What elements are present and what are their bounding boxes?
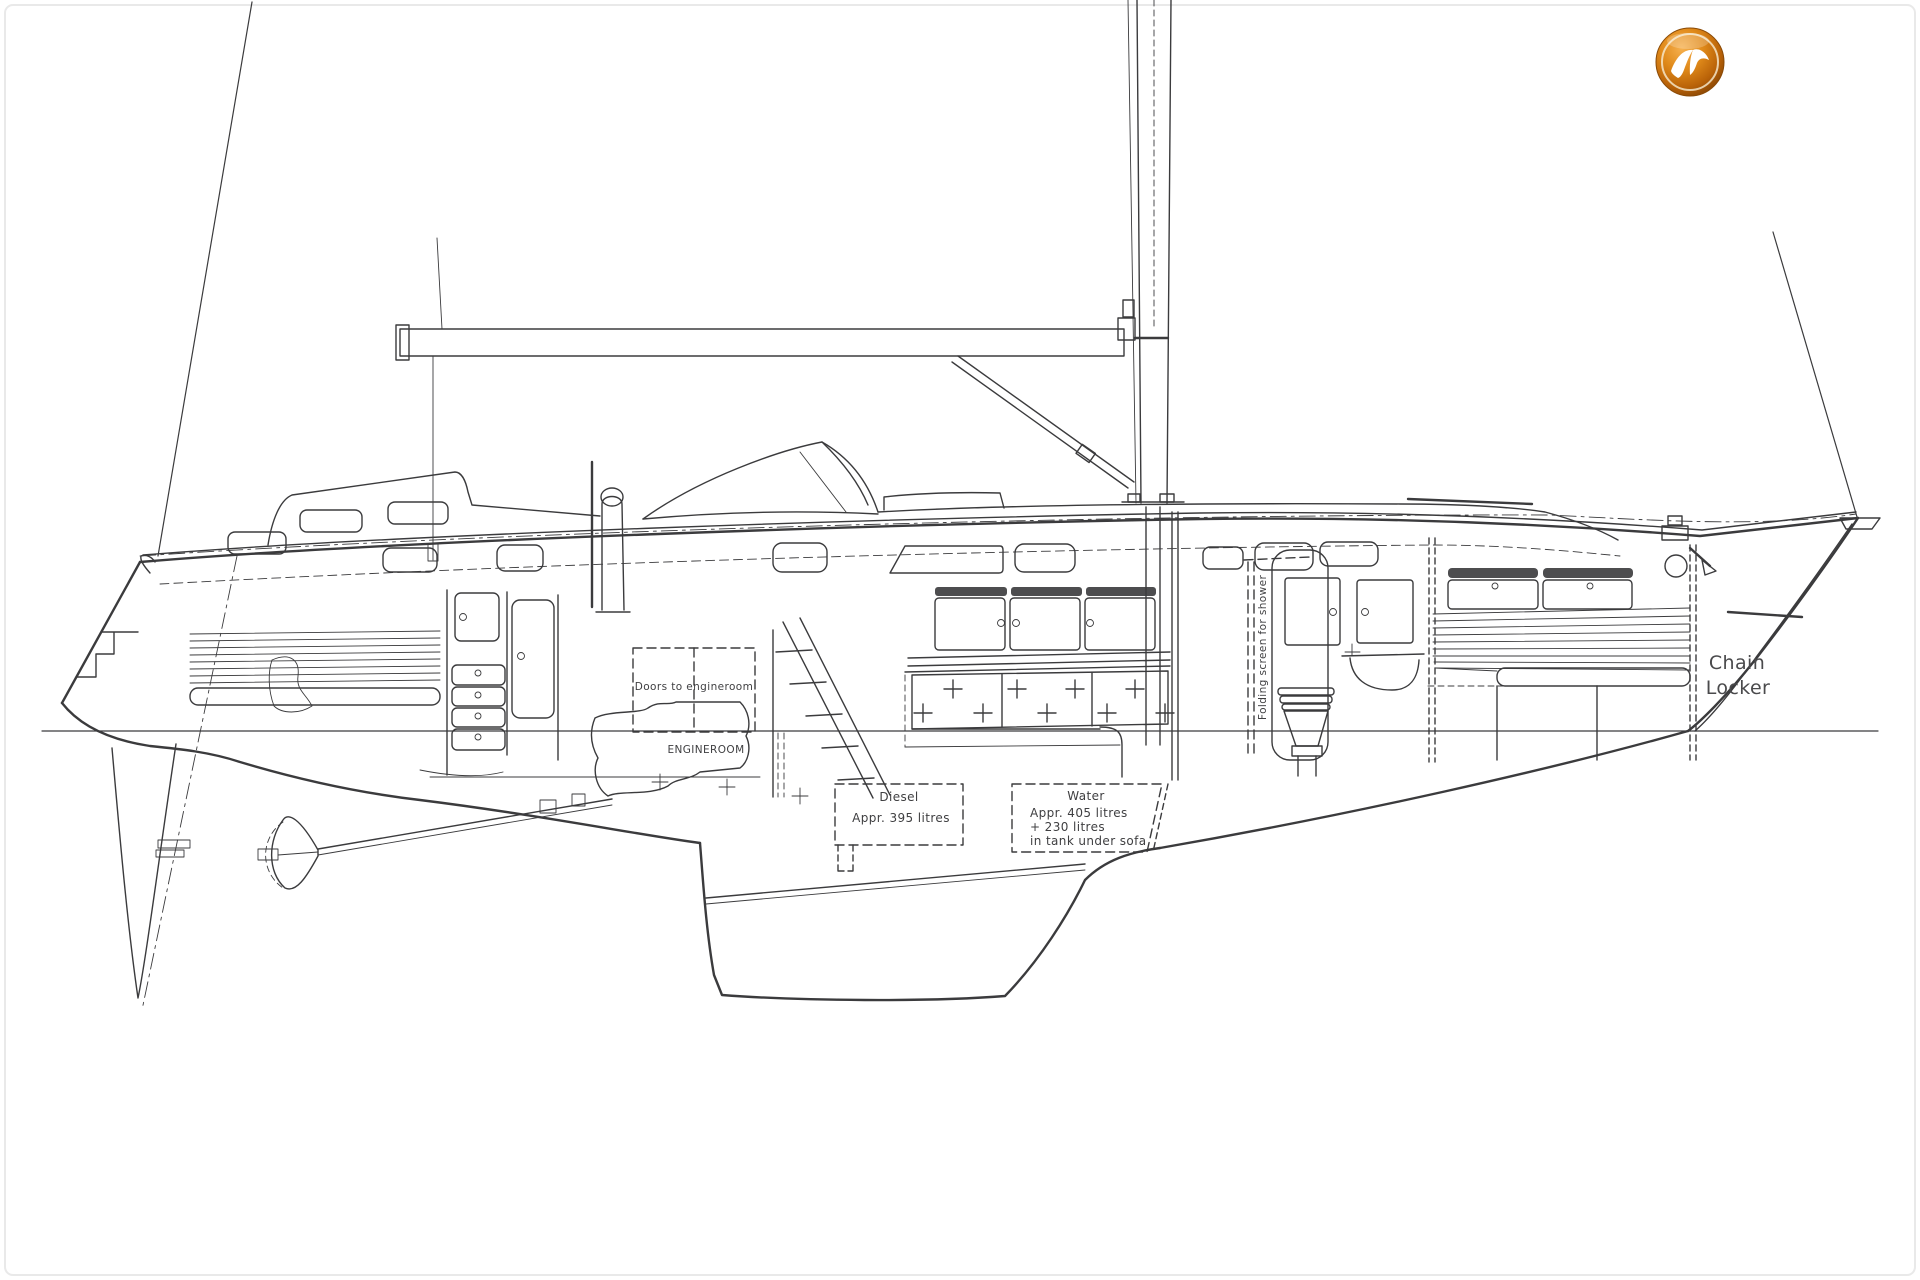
boom-vang [952, 356, 1134, 488]
forestay [1773, 232, 1857, 517]
chain-locker-label-1: Chain [1709, 652, 1765, 674]
water-tank-capacity-2: + 230 litres [1030, 820, 1105, 834]
backstay [158, 2, 252, 556]
deck-datum-line [140, 514, 1856, 556]
folding-screen-label: Folding screen for shower [1257, 575, 1269, 720]
aft-cabin-interior [190, 590, 558, 776]
propeller [258, 817, 318, 889]
drawer-stack [452, 665, 505, 750]
aft-trunk-window-2 [388, 502, 448, 524]
hull-outline [42, 512, 1878, 1000]
water-tank: Water Appr. 405 litres + 230 litres in t… [1012, 784, 1168, 852]
aft-cabin-door [512, 600, 554, 718]
coachroof [878, 493, 1618, 540]
bow-porthole [1665, 555, 1687, 577]
aft-locker [455, 593, 499, 641]
engineroom-area [430, 630, 808, 804]
sprayhood [643, 442, 878, 519]
chain-locker-label-2: Locker [1706, 677, 1771, 699]
water-tank-capacity-3: in tank under sofa [1030, 834, 1147, 848]
head-fwd-bulkhead [1429, 538, 1435, 762]
mainsheet [428, 356, 438, 561]
hull-bottom-fwd [1160, 731, 1688, 848]
boom [396, 300, 1168, 360]
rigging [158, 0, 1857, 561]
bow-fittings [1662, 516, 1880, 575]
engine-mount-crosses [652, 774, 808, 804]
stern-tip [141, 555, 155, 573]
prop-shaft [318, 794, 612, 855]
mast-support-post [1146, 507, 1160, 745]
shower-screen [1244, 557, 1310, 758]
sink-basin [1342, 644, 1424, 690]
head-cabinet-2 [1357, 580, 1413, 643]
handrail [1408, 499, 1532, 504]
companionway-steps [776, 618, 890, 798]
water-tank-capacity-1: Appr. 405 litres [1030, 806, 1128, 820]
broker-logo [1656, 28, 1724, 96]
aft-cabin-seat [269, 657, 312, 712]
cushion-tufting-marks [914, 680, 1174, 722]
diesel-tank-capacity: Appr. 395 litres [852, 811, 950, 825]
aft-cabin-trunk [268, 472, 600, 545]
chain-locker: Chain Locker [1690, 545, 1802, 760]
aft-trunk-window-1 [300, 510, 362, 532]
v-berth-front [1497, 668, 1690, 686]
aft-berth-slats [190, 631, 440, 683]
mast [1122, 0, 1184, 503]
aft-berth-front [190, 688, 440, 705]
faucet [1345, 644, 1360, 655]
hull-bottom-aft [62, 703, 700, 843]
saloon-cabinet-3 [1085, 598, 1155, 650]
head-door-frame [1272, 550, 1328, 760]
engineroom-label: ENGINEROOM [667, 744, 744, 756]
interior-shelf-line [160, 545, 1620, 584]
rudder [112, 556, 237, 1010]
head-compartment [1244, 538, 1435, 776]
anchor-fluke [1702, 560, 1716, 575]
stern-steps [76, 632, 138, 677]
settee [905, 671, 1174, 777]
saloon-shelf [905, 652, 1170, 672]
keel [700, 843, 1160, 1000]
toilet [1278, 688, 1334, 776]
v-berth-slats [1433, 608, 1690, 670]
saloon-cabinet-1 [935, 598, 1005, 650]
diesel-tank-title: Diesel [879, 790, 918, 804]
engineroom-doors-label: Doors to engineroom [635, 681, 754, 693]
topping-lift [437, 238, 442, 329]
stem-inner-line [1695, 524, 1852, 731]
saloon-head-bulkhead [1172, 512, 1178, 780]
diesel-tank: Diesel Appr. 395 litres [835, 784, 963, 871]
rudder-stock-line [142, 556, 237, 1010]
stem [1688, 518, 1858, 731]
saloon-cabinet-2 [1010, 598, 1080, 650]
head-cabinet-1 [1285, 578, 1340, 645]
blueprint-page: Chain Locker Diesel Appr. 395 litres Wat… [0, 0, 1920, 1280]
water-tank-title: Water [1067, 789, 1104, 803]
saloon [905, 507, 1178, 780]
